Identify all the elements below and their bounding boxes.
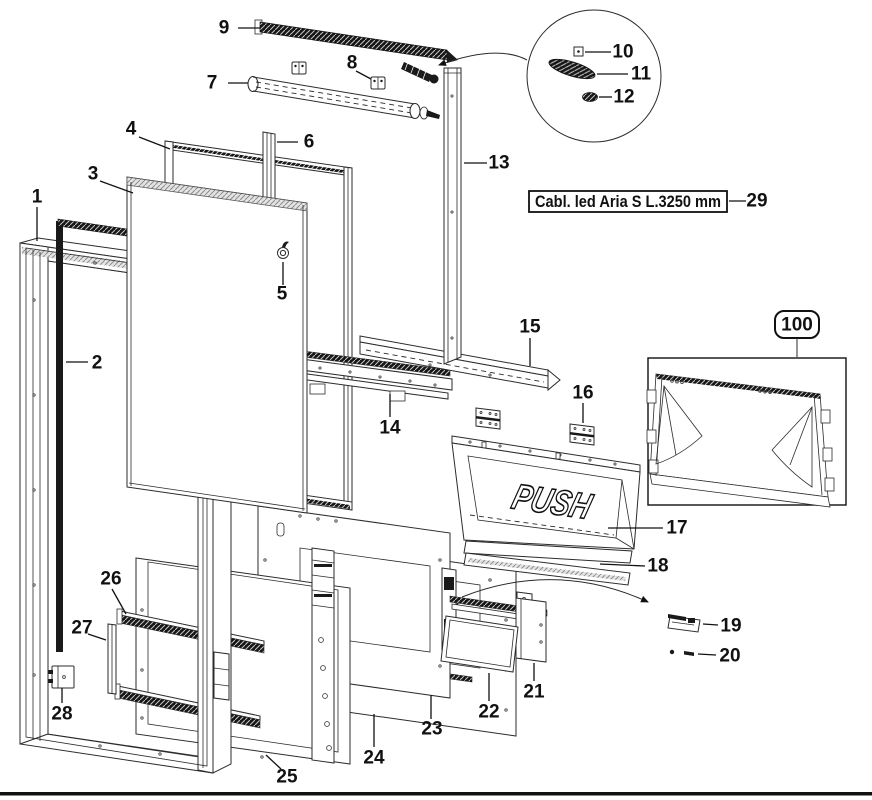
- leader-line-19: [703, 624, 718, 625]
- callout-11: 11: [631, 64, 652, 85]
- hinge-16b: [570, 424, 594, 445]
- inset-100: 100: [647, 311, 846, 507]
- inset-100-number: 100: [781, 315, 813, 336]
- callout-12: 12: [613, 87, 634, 108]
- callout-27: 27: [71, 618, 92, 639]
- leader-line-18: [600, 564, 645, 566]
- glass-panel-3: [127, 177, 307, 513]
- callout-20: 20: [719, 646, 740, 667]
- callout-28: 28: [51, 704, 72, 725]
- callout-29: 29: [746, 191, 767, 212]
- callout-1: 1: [32, 187, 43, 208]
- callout-4: 4: [126, 119, 137, 140]
- diagram-canvas: PUSH Cabl. led Aria S L.3250 mm 100: [0, 0, 872, 800]
- inset-100-panel: [647, 374, 834, 507]
- spacer-panel-21: [516, 592, 546, 662]
- label-box-29: Cabl. led Aria S L.3250 mm: [529, 191, 727, 212]
- terminal-block-28: [48, 666, 74, 688]
- callout-23: 23: [421, 719, 442, 740]
- detail-item-12: [583, 93, 598, 102]
- callout-7: 7: [207, 73, 218, 94]
- callout-14: 14: [379, 418, 401, 439]
- callout-9: 9: [219, 18, 230, 39]
- callout-24: 24: [363, 748, 385, 769]
- callout-2: 2: [92, 353, 103, 374]
- callout-21: 21: [523, 682, 545, 703]
- callout-16: 16: [572, 383, 593, 404]
- callout-3: 3: [88, 164, 99, 185]
- detail-item-11: [547, 55, 597, 82]
- callout-6: 6: [304, 132, 315, 153]
- screw: [401, 62, 439, 84]
- callout-18: 18: [647, 556, 668, 577]
- callout-17: 17: [666, 518, 687, 539]
- leader-line-20: [698, 654, 716, 655]
- callout-25: 25: [276, 767, 298, 788]
- clip-8b: [371, 77, 385, 89]
- side-bar-13: [444, 68, 461, 364]
- bottom-border: [0, 792, 872, 796]
- latch-part-19: [668, 614, 700, 632]
- front-panel-25: [136, 548, 350, 764]
- callout-8: 8: [347, 53, 358, 74]
- callout-22: 22: [478, 702, 499, 723]
- cable-label-text: Cabl. led Aria S L.3250 mm: [535, 193, 721, 211]
- screws-20: [670, 650, 694, 656]
- parts-diagram-page: PUSH Cabl. led Aria S L.3250 mm 100: [0, 0, 872, 800]
- hinge-16a: [476, 408, 500, 429]
- callout-5: 5: [277, 284, 288, 305]
- callout-13: 13: [488, 153, 509, 174]
- callout-19: 19: [720, 616, 741, 637]
- profile-strip-27: [108, 624, 116, 694]
- callout-10: 10: [612, 42, 633, 63]
- tube-7: [248, 77, 440, 120]
- clip-8a: [292, 62, 306, 74]
- leader-line-8: [356, 71, 371, 79]
- callout-15: 15: [519, 317, 541, 338]
- callout-26: 26: [100, 569, 121, 590]
- push-panel-17: PUSH: [452, 436, 640, 563]
